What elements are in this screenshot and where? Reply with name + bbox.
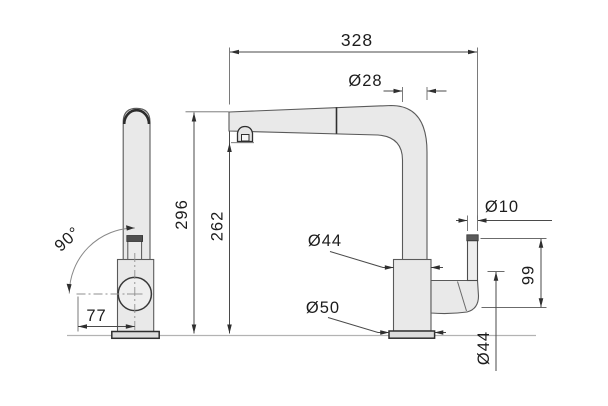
leader-d44 bbox=[330, 252, 394, 268]
arrow-296-top bbox=[192, 113, 197, 122]
label-overall-width: 328 bbox=[341, 30, 373, 50]
front-base-flange bbox=[112, 332, 159, 339]
side-body bbox=[394, 260, 432, 332]
label-spout-clearance: 262 bbox=[209, 211, 227, 242]
arc-arrow-bottom bbox=[67, 284, 72, 293]
side-view bbox=[229, 106, 479, 339]
arrow-d50-right bbox=[434, 330, 443, 335]
label-lever-diameter: Ø10 bbox=[485, 198, 519, 216]
arrow-d10-left bbox=[459, 218, 468, 223]
drawing-canvas: 90° 77 296 262 bbox=[0, 0, 608, 406]
dimension-handle-diameter: Ø44 bbox=[475, 272, 505, 372]
label-body-diameter: Ø44 bbox=[308, 232, 342, 250]
label-handle-height: 99 bbox=[520, 265, 538, 285]
arrow-296-bottom bbox=[192, 325, 197, 334]
leader-d50 bbox=[328, 318, 389, 333]
arrow-d44r-up bbox=[494, 272, 499, 281]
faucet-dimension-drawing: 90° 77 296 262 bbox=[0, 0, 608, 406]
dimension-lever-diameter: Ø10 bbox=[456, 198, 552, 231]
arrow-d10-right bbox=[478, 218, 487, 223]
arrow-328-left bbox=[230, 50, 239, 55]
arrow-99-top bbox=[539, 239, 544, 248]
arrow-328-right bbox=[468, 50, 477, 55]
dimension-spout-clearance: 262 bbox=[209, 131, 255, 334]
label-total-height: 296 bbox=[173, 199, 191, 230]
label-handle-reach: 77 bbox=[86, 307, 106, 325]
label-handle-diameter: Ø44 bbox=[475, 331, 493, 365]
arrow-d28-left bbox=[394, 89, 403, 94]
side-handle-cone bbox=[431, 281, 479, 314]
arrow-262-top bbox=[227, 143, 232, 152]
side-lever-rod bbox=[468, 241, 478, 281]
label-tube-diameter: Ø28 bbox=[348, 72, 382, 90]
label-base-diameter: Ø50 bbox=[306, 299, 340, 317]
arrow-d44-right bbox=[431, 265, 440, 270]
arrow-262-bottom bbox=[227, 325, 232, 334]
arrow-99-bottom bbox=[539, 298, 544, 307]
dimension-handle-height: 99 bbox=[481, 239, 547, 308]
aerator-nozzle bbox=[242, 135, 250, 142]
side-base-flange bbox=[389, 331, 435, 338]
side-lever-cap bbox=[467, 235, 478, 241]
front-view bbox=[77, 108, 160, 338]
label-swivel-angle: 90° bbox=[51, 223, 84, 255]
arrow-d50-left bbox=[380, 330, 389, 335]
arrow-d28-right bbox=[427, 89, 436, 94]
dimension-tube-diameter: Ø28 bbox=[348, 72, 446, 102]
arrow-d44-left bbox=[385, 265, 394, 270]
front-lever-cap bbox=[127, 236, 143, 242]
